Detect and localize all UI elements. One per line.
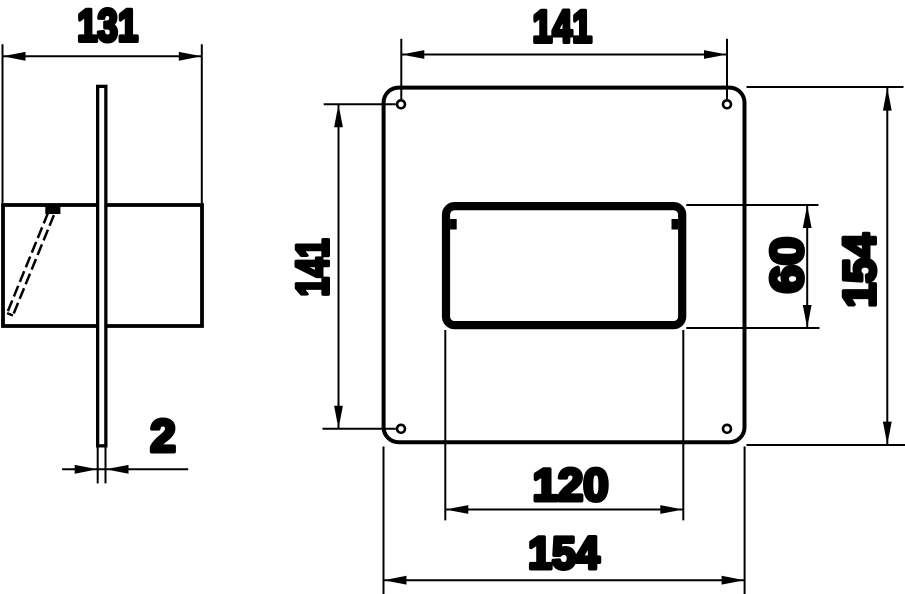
svg-text:154: 154 (834, 234, 885, 308)
svg-text:141: 141 (533, 1, 593, 52)
svg-text:2: 2 (150, 411, 176, 462)
svg-text:131: 131 (77, 0, 138, 51)
svg-text:141: 141 (287, 239, 338, 297)
svg-text:60: 60 (762, 237, 813, 294)
svg-text:154: 154 (528, 528, 600, 579)
svg-text:120: 120 (533, 459, 609, 510)
